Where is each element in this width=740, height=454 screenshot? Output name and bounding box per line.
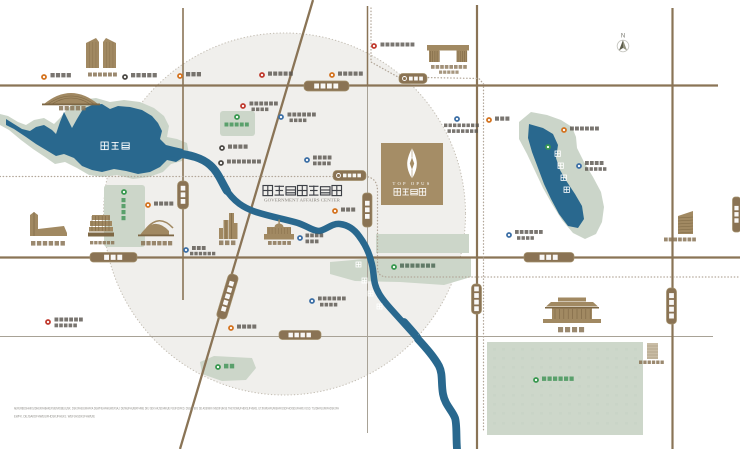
svg-text:GOVERNMENT AFFAIRS CENTER: GOVERNMENT AFFAIRS CENTER	[264, 198, 340, 203]
svg-text:EWFK. DEJSAKDFHWEIUFHDSKJFHEKJ: EWFK. DEJSAKDFHWEIUFHDSKJFHEKJ. WEFJHSDK…	[14, 415, 95, 419]
svg-text:TOP OPUS: TOP OPUS	[393, 181, 432, 186]
svg-text:AEFERBDSHAIKSJDHEKRHBAKEFSIENF: AEFERBDSHAIKSJDHEKRHBAKEFSIENFDBEUUSK. D…	[14, 407, 339, 411]
svg-text:N: N	[621, 34, 625, 40]
